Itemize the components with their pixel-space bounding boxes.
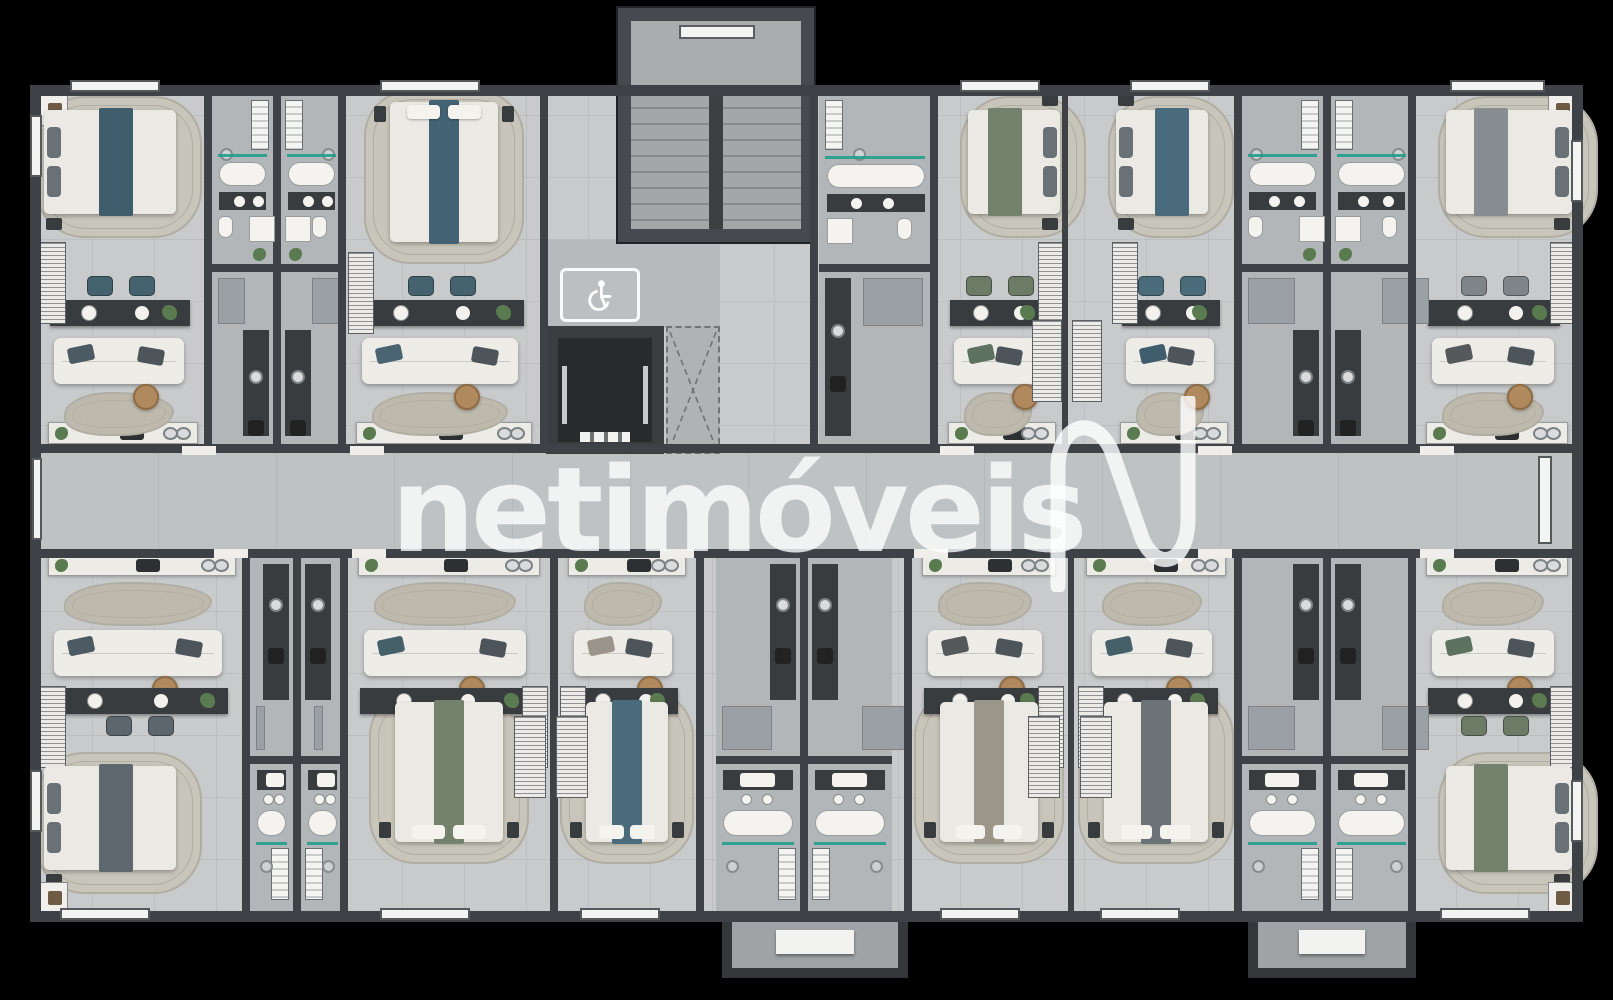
vanity-counter — [219, 192, 266, 210]
wall-segment — [1068, 556, 1074, 912]
bathtub — [257, 810, 286, 836]
vanity-basin — [832, 773, 867, 787]
wavy-ring — [946, 590, 1024, 618]
wall-segment — [810, 92, 818, 444]
refrigerator — [218, 278, 245, 324]
vanity-counter — [1249, 192, 1316, 210]
sink-basin-icon — [322, 196, 333, 207]
sink-basin-icon — [1358, 196, 1369, 207]
bedside-table — [1042, 822, 1054, 838]
bed-pillow — [453, 825, 485, 839]
refrigerator — [1382, 278, 1429, 324]
sofa — [928, 630, 1042, 676]
bed-pillow — [1043, 166, 1057, 197]
bed — [940, 702, 1038, 842]
shower-tray — [827, 218, 853, 244]
core-cross-wall — [808, 756, 892, 764]
living-rug-wavy — [1102, 582, 1202, 626]
kitchen-sink-icon — [497, 426, 531, 441]
chair — [148, 716, 174, 736]
bed-runner — [1474, 108, 1508, 216]
table-lamp-icon — [81, 305, 97, 321]
core-cross-wall — [1331, 756, 1412, 764]
wall-segment — [204, 92, 212, 444]
sofa — [574, 630, 672, 676]
washer-column — [1335, 848, 1353, 900]
galley-cooktop-icon — [775, 648, 791, 664]
vanity-basin — [266, 773, 284, 787]
wall-segment — [338, 92, 346, 444]
coffee-table — [1184, 384, 1210, 410]
shower-glass — [1248, 842, 1317, 845]
sofa — [364, 630, 526, 676]
kitchen-galley — [243, 330, 269, 436]
kitchen-sink-icon — [1021, 426, 1055, 441]
shower-head-icon — [853, 148, 866, 161]
entry-canopy-right — [1248, 916, 1416, 978]
kitchen-sink-icon — [163, 426, 197, 441]
bed — [586, 702, 668, 842]
window — [380, 80, 480, 92]
vanity-counter — [288, 192, 335, 210]
bed — [44, 110, 176, 214]
plant-icon — [55, 559, 68, 572]
plant-icon — [1433, 427, 1446, 440]
refrigerator — [256, 706, 265, 750]
bedside-table — [924, 822, 936, 838]
core-cross-wall — [1331, 264, 1412, 272]
washer-column — [285, 100, 303, 150]
bed-pillow — [1555, 166, 1569, 197]
toilet-icon — [1382, 216, 1397, 238]
sofa — [54, 338, 184, 384]
sink-basin-icon — [1383, 196, 1394, 207]
refrigerator — [722, 706, 772, 750]
cooktop-icon — [444, 559, 468, 572]
bed — [1104, 702, 1208, 842]
living-rug-wavy — [584, 582, 662, 626]
galley-sink-icon — [1341, 370, 1355, 384]
vanity-basin — [317, 773, 335, 787]
shower-tray — [285, 216, 311, 242]
sofa — [362, 338, 518, 384]
core-cross-wall — [281, 264, 342, 272]
canopy-step — [1299, 930, 1365, 954]
refrigerator — [1382, 706, 1429, 750]
wavy-ring — [1110, 590, 1194, 618]
wall-segment — [540, 92, 548, 444]
sink-bowl — [664, 559, 679, 572]
window — [32, 458, 42, 540]
kitchen-galley — [1293, 330, 1319, 436]
chair — [1180, 276, 1206, 296]
bathtub — [827, 164, 925, 188]
washer-column — [1301, 100, 1319, 150]
bedside-table — [379, 822, 391, 838]
kitchen-galley — [263, 564, 289, 700]
galley-cooktop-icon — [310, 648, 326, 664]
bathtub — [815, 810, 885, 836]
plant-icon — [496, 305, 511, 320]
bedside-table — [46, 218, 62, 230]
bed-pillow — [1555, 127, 1569, 158]
refrigerator — [312, 278, 339, 324]
bathtub — [288, 162, 335, 186]
bed-runner — [429, 100, 459, 244]
plant-icon — [55, 427, 68, 440]
window — [60, 908, 150, 920]
cooktop-icon — [627, 559, 651, 572]
sink-basin-icon — [234, 196, 245, 207]
bedside-table — [1212, 822, 1224, 838]
kitchen-galley — [825, 278, 851, 436]
core-cross-wall — [819, 264, 934, 272]
cooktop-icon — [1495, 559, 1519, 572]
core-divider-wall — [293, 552, 301, 916]
sink-basin-icon — [1294, 196, 1305, 207]
bed — [1446, 766, 1572, 870]
window — [380, 908, 470, 920]
window — [70, 80, 160, 92]
door-threshold — [1420, 446, 1454, 455]
round-table-icon — [154, 694, 168, 708]
galley-sink-icon — [1341, 598, 1355, 612]
coffee-table — [454, 384, 480, 410]
sofa-pillow — [1507, 638, 1535, 658]
core-cross-wall — [250, 756, 293, 764]
plant-icon — [929, 559, 942, 572]
desk-console — [358, 300, 524, 326]
desk-console — [1428, 300, 1560, 326]
window — [1571, 780, 1583, 842]
kitchen-galley — [1335, 330, 1361, 436]
washer-column — [251, 100, 269, 150]
wall-segment — [40, 549, 1573, 558]
water-heater-icon — [1556, 891, 1570, 905]
sink-basin-icon — [253, 196, 264, 207]
sink-bowl — [214, 559, 229, 572]
bed — [44, 766, 176, 870]
kitchen-sink-icon — [1193, 426, 1227, 441]
sofa-pillow — [471, 346, 499, 366]
sink-bowl — [1546, 559, 1561, 572]
wall-segment — [1408, 556, 1416, 912]
bathtub — [1249, 810, 1316, 836]
unit-D — [1110, 92, 1238, 448]
bath-kitchen-core-top-left — [212, 92, 342, 448]
living-rug-wavy — [64, 582, 212, 626]
bedside-table — [672, 822, 684, 838]
core-divider-wall — [273, 92, 281, 448]
wardrobe — [1072, 320, 1102, 402]
table-lamp-icon — [1457, 305, 1473, 321]
washer-column — [812, 848, 830, 900]
bed-runner — [1155, 108, 1189, 216]
bed-runner — [99, 764, 133, 872]
bed-pillow — [1121, 825, 1152, 839]
unit-E — [1416, 92, 1578, 448]
sofa-pillow — [1165, 638, 1193, 658]
chair — [408, 276, 434, 296]
plant-icon — [365, 559, 378, 572]
wardrobe — [514, 716, 546, 798]
bed-runner — [99, 108, 133, 216]
wall-segment — [1408, 92, 1416, 444]
galley-sink-icon — [291, 370, 305, 384]
bed-pillow — [47, 166, 61, 197]
plant-icon — [1532, 693, 1547, 708]
shower-glass — [287, 154, 336, 157]
cooktop-icon — [988, 559, 1012, 572]
sink-basin-icon — [274, 794, 285, 805]
bedside-table — [507, 822, 519, 838]
bed-pillow — [1119, 166, 1133, 197]
shower-glass — [722, 842, 794, 845]
toilet-icon — [312, 216, 327, 238]
plant-icon — [1020, 305, 1035, 320]
living-rug-wavy — [1442, 582, 1544, 626]
shower-glass — [218, 154, 267, 157]
sink-bowl — [1034, 559, 1049, 572]
bed-pillow — [47, 822, 61, 853]
bed-pillow — [407, 105, 439, 119]
wall-segment — [904, 556, 912, 912]
sink-basin-icon — [263, 794, 274, 805]
toilet-icon — [1248, 216, 1263, 238]
wheelchair-icon — [583, 278, 617, 312]
galley-sink-icon — [1299, 370, 1313, 384]
bathtub — [1338, 162, 1405, 186]
table-lamp-icon — [1457, 693, 1473, 709]
sink-basin-icon — [1287, 794, 1298, 805]
door-threshold — [940, 446, 974, 455]
kitchen-galley — [285, 330, 311, 436]
bathtub — [1249, 162, 1316, 186]
core-cross-wall — [1242, 756, 1323, 764]
round-table-icon — [456, 306, 470, 320]
wardrobe — [1032, 320, 1062, 402]
bed — [395, 702, 503, 842]
desk-console — [50, 300, 190, 326]
wavy-ring — [1450, 590, 1536, 618]
wall-segment — [1234, 92, 1242, 444]
plant-icon — [955, 427, 968, 440]
sofa-pillow — [175, 638, 203, 658]
vanity-basin — [1265, 773, 1299, 787]
sink-basin-icon — [762, 794, 773, 805]
wardrobe — [40, 242, 66, 324]
desk-console — [50, 688, 228, 714]
round-table-icon — [1509, 306, 1523, 320]
bath-kitchen-core-bottom-center — [716, 552, 892, 916]
core-cross-wall — [716, 756, 800, 764]
bed-pillow — [47, 127, 61, 158]
kitchen-galley — [305, 564, 331, 700]
refrigerator — [1248, 706, 1295, 750]
bed-pillow — [47, 783, 61, 814]
sink-basin-icon — [741, 794, 752, 805]
core-cross-wall — [1242, 264, 1323, 272]
sofa — [54, 630, 222, 676]
bed-runner — [612, 700, 642, 844]
sink-bowl — [518, 559, 533, 572]
sofa — [1432, 338, 1554, 384]
window — [1450, 80, 1545, 92]
door-threshold — [350, 446, 384, 455]
coffee-table — [133, 384, 159, 410]
wall-segment — [30, 85, 1583, 96]
bedside-table — [1088, 822, 1100, 838]
shower-tray — [249, 216, 275, 242]
door-threshold — [352, 549, 386, 558]
table-lamp-icon — [393, 305, 409, 321]
sink-bowl — [1546, 427, 1561, 440]
washer-column — [778, 848, 796, 900]
sofa-pillow — [625, 638, 653, 658]
washer-column — [825, 100, 843, 150]
shower-tray — [1299, 216, 1325, 242]
corridor-tiles — [40, 452, 1573, 550]
sofa-pillow — [1507, 346, 1535, 366]
sink-basin-icon — [303, 196, 314, 207]
bedside-table — [1118, 218, 1134, 230]
bedside-table — [1042, 218, 1058, 230]
chair — [1461, 276, 1487, 296]
sink-bowl — [1034, 427, 1049, 440]
galley-cooktop-icon — [1298, 420, 1314, 436]
vanity-counter — [308, 770, 337, 790]
washer-column — [1301, 848, 1319, 900]
door-threshold — [1198, 549, 1232, 558]
round-table-icon — [135, 306, 149, 320]
wardrobe — [1038, 242, 1064, 324]
shower-tray — [1335, 216, 1361, 242]
chair — [1008, 276, 1034, 296]
wavy-ring — [592, 590, 654, 618]
plant-icon — [1532, 305, 1547, 320]
refrigerator — [863, 278, 923, 326]
living-rug-wavy — [374, 582, 516, 626]
plant-icon — [1093, 559, 1106, 572]
bed — [1446, 110, 1572, 214]
kitchen-galley — [812, 564, 838, 700]
bedside-table — [502, 106, 514, 122]
sofa — [1092, 630, 1212, 676]
sink-basin-icon — [883, 198, 894, 209]
sofa — [1126, 338, 1214, 384]
wardrobe — [348, 252, 374, 334]
wavy-ring — [380, 400, 500, 428]
wall-segment — [1062, 92, 1068, 444]
window — [30, 770, 42, 832]
sofa — [1432, 630, 1554, 676]
vanity-counter — [723, 770, 793, 790]
kitchen-galley — [770, 564, 796, 700]
kitchen-sink-icon — [1021, 558, 1055, 573]
kitchen-sink-icon — [1191, 558, 1225, 573]
kitchen-sink-icon — [651, 558, 685, 573]
shower-glass — [1337, 154, 1406, 157]
galley-sink-icon — [818, 598, 832, 612]
sink-basin-icon — [325, 794, 336, 805]
living-rug-wavy — [938, 582, 1032, 626]
window — [1100, 908, 1180, 920]
bed-runner — [434, 700, 464, 844]
bath-kitchen-core-bottom-right — [1242, 552, 1412, 916]
bed-runner — [1474, 764, 1508, 872]
washer-column — [271, 848, 289, 900]
water-heater-icon — [48, 891, 62, 905]
shower-glass — [307, 842, 338, 845]
window — [580, 908, 660, 920]
chair — [1138, 276, 1164, 296]
wardrobe — [1080, 716, 1112, 798]
bed — [390, 102, 498, 242]
core-divider-wall — [1323, 552, 1331, 916]
shower-head-icon — [260, 860, 273, 873]
vanity-basin — [1354, 773, 1388, 787]
toilet-icon — [218, 216, 233, 238]
bed-pillow — [1043, 127, 1057, 158]
galley-sink-icon — [776, 598, 790, 612]
bed-pillow — [1555, 783, 1569, 814]
plant-icon — [1303, 248, 1316, 261]
bedside-table — [1554, 218, 1570, 230]
window — [940, 908, 1020, 920]
galley-sink-icon — [831, 324, 845, 338]
window — [960, 80, 1040, 92]
vanity-counter — [1338, 770, 1405, 790]
shower-glass — [825, 156, 925, 159]
galley-cooktop-icon — [1340, 420, 1356, 436]
sink-bowl — [1206, 427, 1221, 440]
sink-basin-icon — [1376, 794, 1387, 805]
plant-icon — [363, 427, 376, 440]
bed-runner — [1141, 700, 1171, 844]
chair — [1503, 716, 1529, 736]
galley-cooktop-icon — [1340, 648, 1356, 664]
stair-window — [679, 25, 755, 39]
bed — [1116, 110, 1208, 214]
table-lamp-icon — [87, 693, 103, 709]
shower-glass — [256, 842, 287, 845]
bedside-table — [570, 822, 582, 838]
sink-basin-icon — [851, 198, 862, 209]
sofa-pillow — [995, 346, 1023, 366]
plant-icon — [289, 248, 302, 261]
core-cross-wall — [212, 264, 273, 272]
stair-divider-wall — [709, 87, 723, 229]
window — [30, 115, 42, 177]
chair — [129, 276, 155, 296]
stairwell — [618, 8, 814, 242]
sink-bowl — [176, 427, 191, 440]
table-lamp-icon — [973, 305, 989, 321]
chair — [1503, 276, 1529, 296]
chair — [966, 276, 992, 296]
shower-glass — [1248, 154, 1317, 157]
vanity-counter — [815, 770, 885, 790]
sink-basin-icon — [833, 794, 844, 805]
cooktop-icon — [1154, 559, 1178, 572]
bed-pillow — [630, 825, 655, 839]
sink-basin-icon — [1355, 794, 1366, 805]
kitchen-galley — [1335, 564, 1361, 700]
washer-column — [1335, 100, 1353, 150]
galley-cooktop-icon — [830, 376, 846, 392]
door-threshold — [182, 446, 216, 455]
bath-kitchen-core-bottom-left — [250, 552, 344, 916]
